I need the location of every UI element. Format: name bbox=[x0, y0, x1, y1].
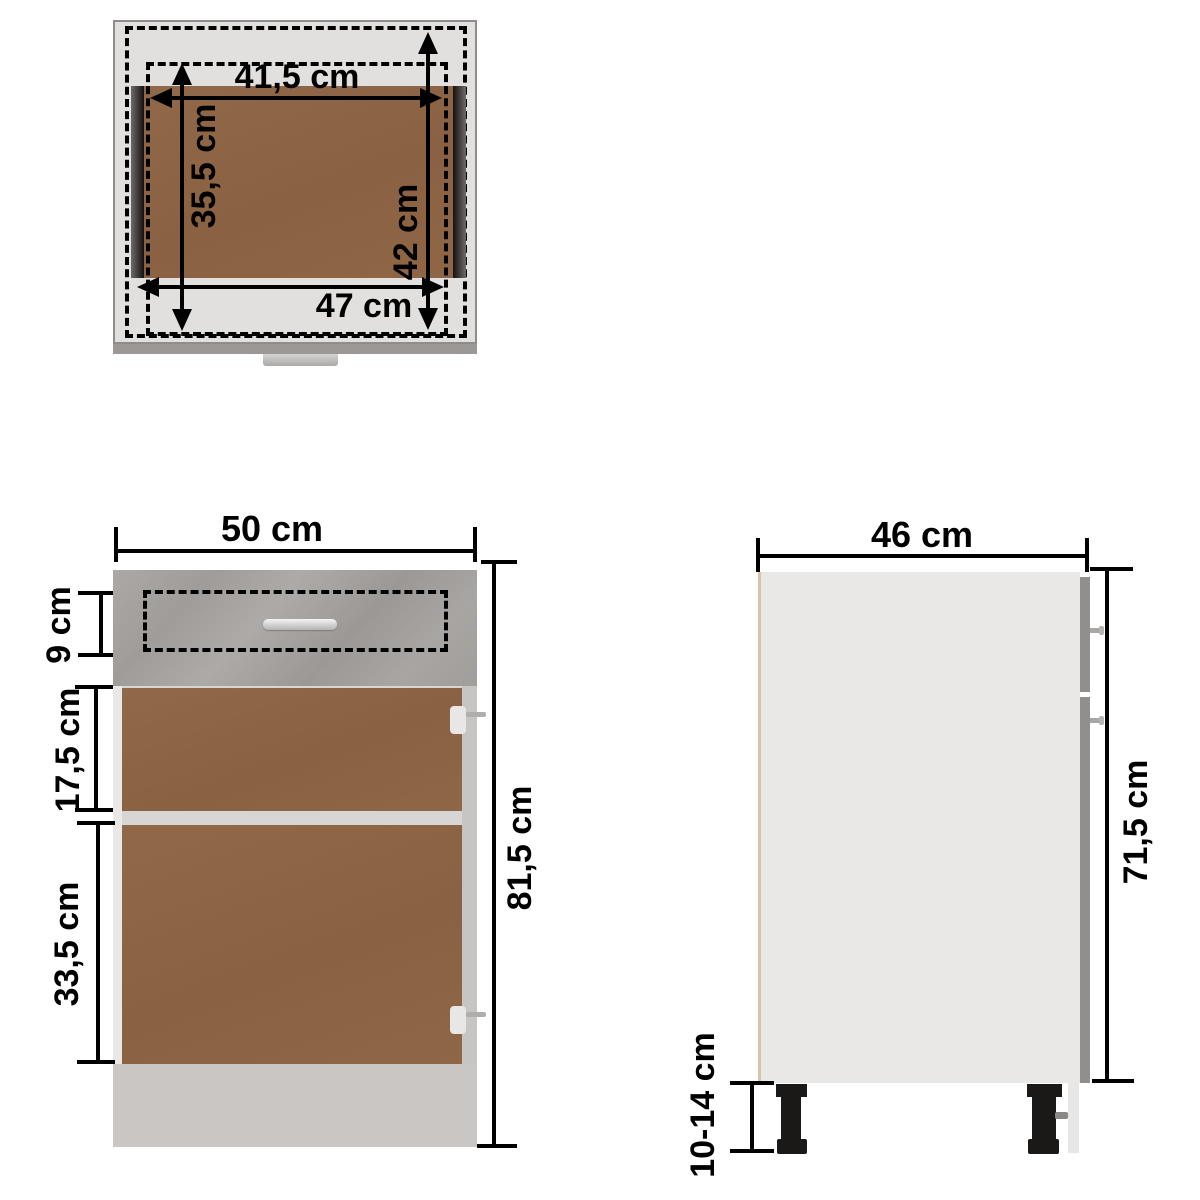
dim-label: 47 cm bbox=[316, 289, 412, 323]
dim-label: 10-14 cm bbox=[686, 1032, 720, 1178]
arrowhead-right bbox=[420, 88, 442, 108]
dim-label: 81,5 cm bbox=[503, 786, 537, 911]
dim-line bbox=[99, 593, 103, 657]
dim-line bbox=[492, 560, 496, 1148]
drawer-slide-left bbox=[131, 86, 144, 278]
end-tick-bottom bbox=[75, 808, 113, 812]
top-view: 41,5 cm 35,5 cm 42 cm 47 cm bbox=[0, 0, 600, 420]
dim-line bbox=[94, 687, 98, 812]
dim-label: 50 cm bbox=[221, 511, 323, 547]
dim-line bbox=[1105, 567, 1109, 1083]
base-plinth bbox=[113, 1064, 477, 1147]
dim-line bbox=[180, 80, 184, 316]
leg-foot bbox=[1028, 1139, 1059, 1154]
dim-label: 9 cm bbox=[42, 586, 76, 664]
dim-line bbox=[96, 823, 100, 1064]
corner-tick-top bbox=[481, 560, 517, 564]
end-tick-left bbox=[756, 538, 760, 572]
dim-line bbox=[426, 48, 430, 314]
hinge-bottom bbox=[450, 1006, 466, 1034]
front-view: 50 cm 81,5 cm 9 cm 17,5 cm 33,5 cm bbox=[0, 500, 600, 1200]
leg-stem bbox=[781, 1097, 801, 1140]
dim-line bbox=[750, 1083, 754, 1153]
leg-flange bbox=[776, 1084, 807, 1097]
end-tick-bottom bbox=[78, 653, 113, 657]
dim-label: 46 cm bbox=[871, 517, 973, 553]
leg-stem bbox=[1032, 1097, 1056, 1140]
hinge-pin-bottom-head bbox=[1099, 716, 1104, 725]
dim-line bbox=[114, 549, 477, 553]
corner-tick-top bbox=[1090, 567, 1133, 571]
dim-label: 35,5 cm bbox=[187, 104, 221, 229]
end-tick-left bbox=[114, 527, 118, 562]
end-tick-bottom bbox=[77, 1060, 115, 1064]
arrowhead-up bbox=[172, 63, 192, 85]
arrowhead-left bbox=[150, 88, 172, 108]
end-tick-top bbox=[730, 1081, 774, 1085]
end-tick-bottom bbox=[1092, 1079, 1134, 1083]
front-edge-lower-strip bbox=[1080, 697, 1090, 1083]
arrowhead-up bbox=[418, 32, 438, 54]
dim-label: 41,5 cm bbox=[235, 60, 360, 94]
side-view: 46 cm 71,5 cm 10-14 cm bbox=[600, 500, 1200, 1200]
hinge-pin-top-head bbox=[1099, 626, 1104, 635]
door-upper-panel bbox=[122, 688, 462, 811]
front-edge-upper-strip bbox=[1080, 577, 1090, 692]
dim-label: 33,5 cm bbox=[50, 882, 84, 1007]
leg-foot bbox=[777, 1139, 807, 1154]
dim-label: 17,5 cm bbox=[51, 688, 85, 813]
drawer-handle bbox=[263, 619, 337, 630]
furniture-dimension-diagram: { "diagram": { "views": { "top": { "dims… bbox=[0, 0, 1200, 1200]
dim-line bbox=[154, 285, 428, 289]
leg-adjuster bbox=[1055, 1112, 1068, 1119]
side-panel bbox=[758, 572, 1080, 1083]
hinge-top-pin bbox=[466, 712, 486, 717]
arrowhead-down bbox=[172, 309, 192, 331]
drawer-slide-right bbox=[453, 86, 466, 278]
drawer-handle-tab bbox=[263, 354, 338, 366]
dim-label: 71,5 cm bbox=[1119, 760, 1153, 885]
arrowhead-left bbox=[137, 277, 159, 297]
carcass-left-edge bbox=[113, 686, 122, 1064]
dim-line bbox=[758, 554, 1089, 558]
end-tick-top bbox=[75, 685, 113, 689]
door-bottom-extension bbox=[1068, 1083, 1079, 1153]
door-lower-panel bbox=[122, 825, 462, 1064]
end-tick-right bbox=[1085, 538, 1089, 572]
hinge-top bbox=[450, 706, 466, 734]
end-tick-top bbox=[78, 591, 113, 595]
leg-flange bbox=[1027, 1084, 1062, 1097]
hinge-bottom-pin bbox=[466, 1012, 486, 1017]
end-tick-bottom bbox=[730, 1149, 774, 1153]
drawer-front-edge bbox=[113, 344, 477, 354]
arrowhead-right bbox=[422, 277, 444, 297]
dim-line bbox=[168, 96, 432, 100]
end-tick-bottom bbox=[477, 1144, 517, 1148]
end-tick-top bbox=[77, 821, 115, 825]
dim-label: 42 cm bbox=[389, 184, 423, 280]
arrowhead-down bbox=[418, 308, 438, 330]
end-tick-right bbox=[473, 527, 477, 562]
